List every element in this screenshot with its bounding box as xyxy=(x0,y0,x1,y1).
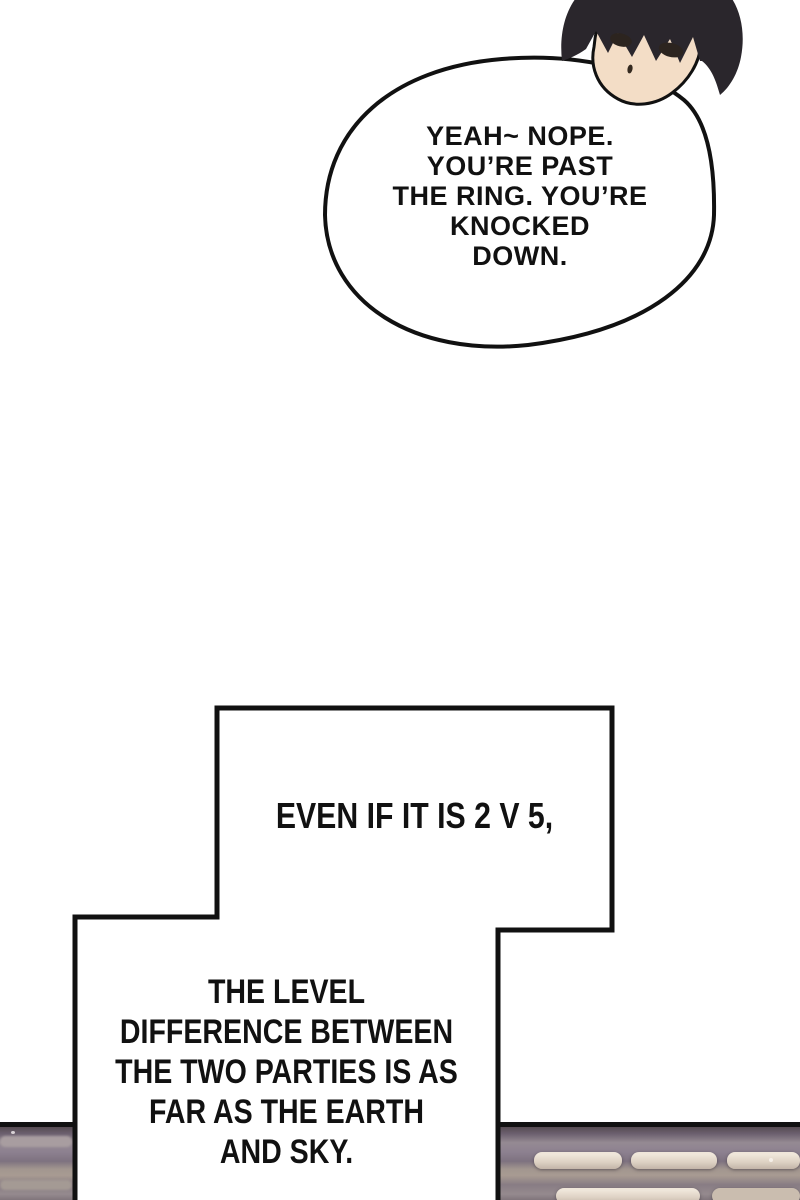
bubble-line: THE RING. YOU’RE xyxy=(330,181,710,211)
step-pad xyxy=(727,1152,800,1169)
character-face xyxy=(593,1,701,104)
character-head xyxy=(550,0,750,130)
panel-streak xyxy=(0,1136,72,1147)
bubble-line: KNOCKED xyxy=(330,211,710,241)
dust-speck xyxy=(769,1158,773,1162)
narration-box-1: EVEN IF IT IS 2 V 5, xyxy=(249,795,581,837)
narration-line: EVEN IF IT IS 2 V 5, xyxy=(249,795,581,837)
step-pad xyxy=(534,1152,622,1169)
narration-line: DIFFERENCE BETWEEN xyxy=(109,1012,464,1052)
step-pad xyxy=(556,1188,700,1200)
narration-box-2: THE LEVEL DIFFERENCE BETWEEN THE TWO PAR… xyxy=(109,972,464,1172)
comic-page: YEAH~ NOPE. YOU’RE PAST THE RING. YOU’RE… xyxy=(0,0,800,1200)
step-pad xyxy=(631,1152,717,1169)
left-eye xyxy=(609,31,633,49)
narration-line: THE LEVEL xyxy=(109,972,464,1012)
dust-speck xyxy=(11,1131,15,1134)
right-eye xyxy=(657,40,685,60)
character-hair xyxy=(561,0,742,95)
narration-line: THE TWO PARTIES IS AS xyxy=(109,1052,464,1092)
bubble-line: YOU’RE PAST xyxy=(330,151,710,181)
narration-line: AND SKY. xyxy=(109,1132,464,1172)
speech-bubble-text: YEAH~ NOPE. YOU’RE PAST THE RING. YOU’RE… xyxy=(330,121,710,271)
bubble-line: DOWN. xyxy=(330,241,710,271)
step-pad xyxy=(712,1188,800,1200)
bubble-line: YEAH~ NOPE. xyxy=(330,121,710,151)
panel-streak xyxy=(0,1180,72,1190)
narration-line: FAR AS THE EARTH xyxy=(109,1092,464,1132)
mouth xyxy=(627,64,634,74)
